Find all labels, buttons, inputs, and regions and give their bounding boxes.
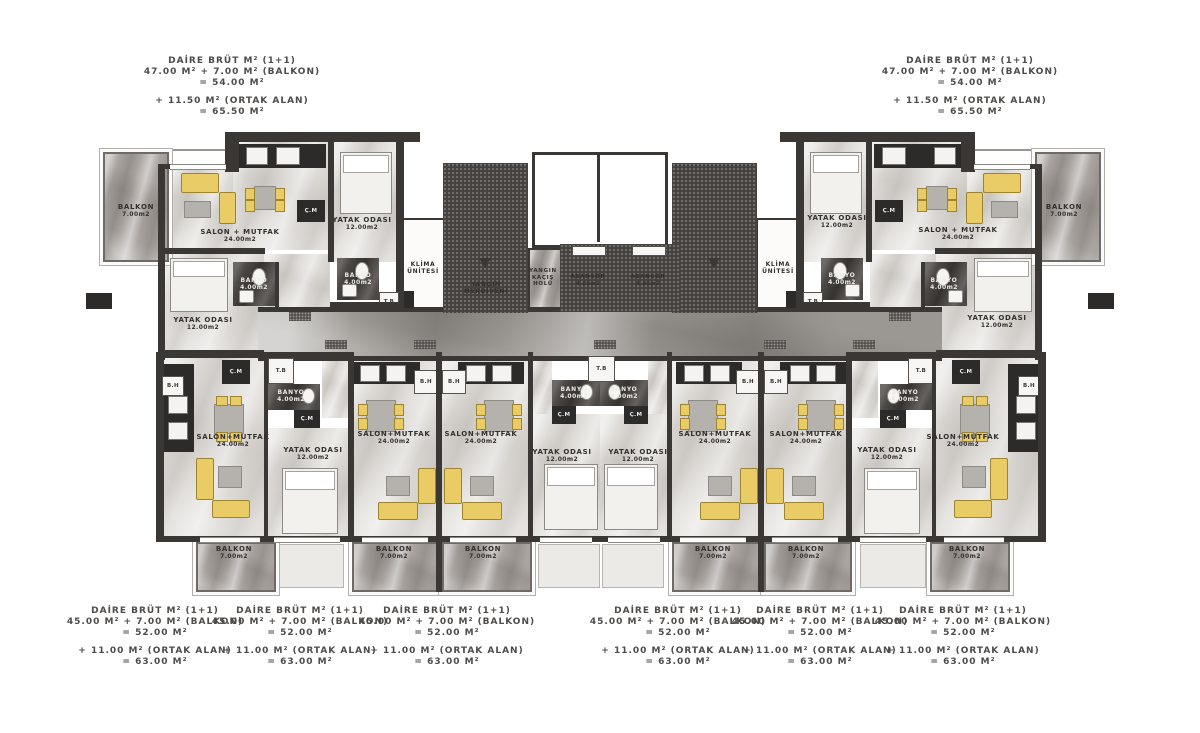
entry-hall	[852, 358, 878, 418]
coffee-table	[184, 201, 211, 218]
room-label-bedroom: YATAK ODASI12.00m2	[857, 446, 916, 462]
ac-unit-box	[1088, 293, 1114, 309]
chair	[245, 188, 255, 200]
chair	[512, 418, 522, 430]
armchair	[740, 468, 758, 504]
room-label-balcony: BALKON7.00m2	[949, 545, 985, 561]
stove	[492, 365, 512, 382]
utility-box: B.H	[442, 370, 466, 394]
chair	[834, 418, 844, 430]
sofa	[983, 173, 1021, 193]
utility-box: T.B	[268, 358, 294, 384]
chair	[834, 404, 844, 416]
stove	[276, 147, 300, 165]
annotation-sum: 47.00 M² + 7.00 M² (BALKON)	[144, 67, 320, 78]
utility-box: B.H	[764, 370, 788, 394]
window	[944, 537, 1004, 543]
bed	[282, 468, 338, 534]
chair	[476, 418, 486, 430]
annotation-grand-total: = 65.50 M²	[144, 107, 320, 118]
kitchen-sink	[790, 365, 810, 382]
room-label-bathroom: BANYO4.00m2	[344, 272, 372, 286]
chair	[275, 200, 285, 212]
coffee-table	[962, 466, 986, 488]
sofa	[954, 500, 992, 518]
room-label-fire-escape-hall: YANGINKAÇIŞHOLÜ	[529, 268, 557, 288]
wall	[330, 302, 400, 312]
kitchen-sink	[1016, 396, 1036, 414]
annotation-title: DAİRE BRÜT M² (1+1)	[882, 56, 1058, 67]
dining-table	[214, 404, 244, 434]
room-label-balcony: BALKON7.00m2	[1046, 203, 1082, 219]
annotation-sum: 45.00 M² + 7.00 M² (BALKON)	[875, 617, 1051, 628]
wall	[921, 262, 925, 312]
chair	[394, 418, 404, 430]
room-label-balcony: BALKON7.00m2	[216, 545, 252, 561]
wall	[848, 352, 1044, 358]
ac-unit-box	[86, 293, 112, 309]
unit-area-annotation-bottom-3: DAİRE BRÜT M² (1+1) 45.00 M² + 7.00 M² (…	[359, 606, 535, 668]
stove	[684, 365, 704, 382]
wall	[396, 142, 404, 312]
wall	[932, 358, 936, 542]
kitchen-sink	[386, 365, 406, 382]
room-label-bedroom: YATAK ODASI12.00m2	[807, 214, 866, 230]
chair	[716, 418, 726, 430]
bed	[810, 152, 862, 214]
room-label-bathroom: BANYO4.00m2	[891, 389, 919, 403]
annotation-title: DAİRE BRÜT M² (1+1)	[144, 56, 320, 67]
entry-hall	[648, 358, 667, 414]
chair	[798, 418, 808, 430]
closet-box: Ç.M	[875, 200, 903, 222]
chair	[947, 200, 957, 212]
utility-box: B.H	[1018, 376, 1040, 396]
entry-mat	[289, 312, 311, 321]
sofa	[212, 500, 250, 518]
chair	[976, 396, 988, 406]
sofa	[700, 502, 740, 520]
room-label-bathroom: BANYO4.00m2	[610, 386, 638, 400]
bathroom-sink	[239, 290, 254, 303]
annotation-total: = 52.00 M²	[875, 628, 1051, 639]
chair	[394, 404, 404, 416]
window	[860, 537, 926, 543]
kitchen-sink	[934, 147, 956, 165]
bed	[340, 152, 392, 214]
wall	[1035, 164, 1042, 360]
closet-box: Ç.M	[222, 360, 250, 384]
entry-mat	[594, 340, 616, 349]
room-label-living: SALON+MUTFAK24.00m2	[197, 433, 270, 449]
annotation-sum: 45.00 M² + 7.00 M² (BALKON)	[359, 617, 535, 628]
chair	[962, 396, 974, 406]
sofa	[990, 458, 1008, 500]
chair	[216, 396, 228, 406]
utility-box: T.B	[908, 358, 934, 384]
room-label-bedroom: YATAK ODASI12.00m2	[608, 448, 667, 464]
service-panel	[860, 544, 926, 588]
entry-mat	[764, 340, 786, 349]
entry-mat	[325, 340, 347, 349]
annotation-title: DAİRE BRÜT M² (1+1)	[875, 606, 1051, 617]
coffee-table	[708, 476, 732, 496]
sofa	[462, 502, 502, 520]
sofa	[784, 502, 824, 520]
stove	[816, 365, 836, 382]
wall	[275, 262, 279, 312]
room-label-living: SALON+MUTFAK24.00m2	[927, 433, 1000, 449]
window	[608, 537, 660, 543]
bed	[864, 468, 920, 534]
kitchen-sink	[246, 147, 268, 165]
chair	[358, 418, 368, 430]
room-label-balcony: BALKON7.00m2	[118, 203, 154, 219]
stair-arrow-right	[708, 258, 720, 268]
annotation-total: = 54.00 M²	[882, 78, 1058, 89]
stairwell-right	[672, 163, 757, 313]
utility-box: T.B	[588, 356, 615, 382]
wall	[264, 358, 268, 542]
bed	[974, 258, 1032, 312]
stove	[168, 422, 188, 440]
annotation-grand-total: = 65.50 M²	[882, 107, 1058, 118]
bed	[604, 464, 658, 530]
wall	[158, 164, 165, 360]
wall	[165, 248, 265, 254]
corridor	[258, 307, 942, 361]
chair	[245, 200, 255, 212]
wall	[935, 248, 1035, 254]
room-label-balcony: BALKON7.00m2	[788, 545, 824, 561]
annotation-total: = 54.00 M²	[144, 78, 320, 89]
service-panel	[278, 544, 344, 588]
room-label-living: SALON+MUTFAK24.00m2	[445, 430, 518, 446]
room-label-klima-right: KLİMAÜNİTESİ	[762, 261, 794, 275]
window	[362, 537, 428, 543]
bathroom-sink	[948, 290, 963, 303]
entry-hall	[533, 358, 552, 414]
bed	[544, 464, 598, 530]
entry-mat	[414, 340, 436, 349]
annotation-grand-total: = 63.00 M²	[875, 657, 1051, 668]
stove	[882, 147, 906, 165]
armchair	[766, 468, 784, 504]
dining-table	[960, 404, 990, 434]
wall	[846, 352, 852, 542]
room-label-bathroom: BANYO4.00m2	[240, 277, 268, 291]
utility-box: B.H	[162, 376, 184, 396]
armchair	[418, 468, 436, 504]
room-label-balcony: BALKON7.00m2	[376, 545, 412, 561]
wall	[800, 302, 870, 312]
sofa	[378, 502, 418, 520]
wall	[780, 132, 972, 142]
room-label-living: SALON + MUTFAK24.00m2	[200, 228, 279, 244]
window	[680, 537, 746, 543]
room-label-living: SALON+MUTFAK24.00m2	[679, 430, 752, 446]
room-label-bedroom: YATAK ODASI12.00m2	[532, 448, 591, 464]
stove	[360, 365, 380, 382]
room-label-bathroom: BANYO4.00m2	[828, 272, 856, 286]
room-label-elevator-right: ASANSÖR4.00m2	[631, 274, 666, 288]
room-label-elevator-left: ASANSÖR4.00m2	[571, 274, 606, 288]
room-label-living: SALON + MUTFAK24.00m2	[918, 226, 997, 242]
floor-plan-canvas: DAİRE BRÜT M² (1+1) 47.00 M² + 7.00 M² (…	[0, 0, 1200, 733]
chair	[476, 404, 486, 416]
bed	[170, 258, 228, 312]
room-label-klima-left: KLİMAÜNİTESİ	[407, 261, 439, 275]
chair	[275, 188, 285, 200]
chair	[947, 188, 957, 200]
service-panel	[538, 544, 600, 588]
closet-box: Ç.M	[952, 360, 980, 384]
sofa	[196, 458, 214, 500]
armchair	[219, 192, 236, 224]
service-panel	[602, 544, 664, 588]
dining-table	[366, 400, 396, 432]
window	[772, 537, 838, 543]
chair	[230, 396, 242, 406]
room-label-bathroom: BANYO4.00m2	[277, 389, 305, 403]
chair	[917, 200, 927, 212]
annotation-common-area: + 11.00 M² (ORTAK ALAN)	[359, 646, 535, 657]
window	[450, 537, 516, 543]
closet-box: Ç.M	[880, 410, 906, 428]
annotation-total: = 52.00 M²	[359, 628, 535, 639]
coffee-table	[470, 476, 494, 496]
room-label-living: SALON+MUTFAK24.00m2	[358, 430, 431, 446]
room-label-bedroom: YATAK ODASI12.00m2	[283, 446, 342, 462]
dining-table	[926, 186, 948, 210]
stove	[1016, 422, 1036, 440]
unit-area-annotation-top-right: DAİRE BRÜT M² (1+1) 47.00 M² + 7.00 M² (…	[882, 56, 1058, 118]
chair	[798, 404, 808, 416]
annotation-grand-total: = 63.00 M²	[359, 657, 535, 668]
room-label-bedroom: YATAK ODASI12.00m2	[967, 314, 1026, 330]
window	[540, 537, 592, 543]
kitchen-sink	[466, 365, 486, 382]
dining-table	[688, 400, 718, 432]
chair	[680, 418, 690, 430]
unit-area-annotation-bottom-6: DAİRE BRÜT M² (1+1) 45.00 M² + 7.00 M² (…	[875, 606, 1051, 668]
annotation-common-area: + 11.50 M² (ORTAK ALAN)	[882, 96, 1058, 107]
room-label-balcony: BALKON7.00m2	[695, 545, 731, 561]
stair-arrow-left	[479, 258, 491, 268]
wall	[228, 132, 420, 142]
dining-table	[806, 400, 836, 432]
coffee-table	[991, 201, 1018, 218]
room-label-balcony: BALKON7.00m2	[465, 545, 501, 561]
room-label-bathroom: BANYO4.00m2	[560, 386, 588, 400]
elevator-door-left	[572, 246, 606, 256]
railing-line	[967, 149, 1097, 151]
entry-mat	[889, 312, 911, 321]
annotation-common-area: + 11.50 M² (ORTAK ALAN)	[144, 96, 320, 107]
coffee-table	[792, 476, 816, 496]
chair	[917, 188, 927, 200]
annotation-title: DAİRE BRÜT M² (1+1)	[359, 606, 535, 617]
utility-box: B.H	[736, 370, 760, 394]
railing-line	[103, 149, 233, 151]
closet-box: Ç.M	[552, 406, 576, 424]
closet-box: Ç.M	[294, 410, 320, 428]
wall	[866, 142, 872, 262]
armchair	[966, 192, 983, 224]
elevator-shaft-void	[532, 152, 668, 248]
window	[170, 164, 226, 170]
kitchen-sink	[710, 365, 730, 382]
unit-area-annotation-top-left: DAİRE BRÜT M² (1+1) 47.00 M² + 7.00 M² (…	[144, 56, 320, 118]
armchair	[444, 468, 462, 504]
wall	[796, 142, 804, 312]
annotation-sum: 47.00 M² + 7.00 M² (BALKON)	[882, 67, 1058, 78]
window	[200, 537, 260, 543]
closet-box: Ç.M	[624, 406, 648, 424]
chair	[680, 404, 690, 416]
dining-table	[254, 186, 276, 210]
kitchen-sink	[168, 396, 188, 414]
window	[274, 537, 340, 543]
closet-box: Ç.M	[297, 200, 325, 222]
wall	[667, 352, 672, 542]
sofa	[181, 173, 219, 193]
wall	[528, 352, 533, 542]
utility-box: B.H	[414, 370, 438, 394]
room-label-bedroom: YATAK ODASI12.00m2	[332, 216, 391, 232]
elevator-door-right	[632, 246, 666, 256]
chair	[716, 404, 726, 416]
wall	[156, 352, 352, 358]
room-label-bedroom: YATAK ODASI12.00m2	[173, 316, 232, 332]
annotation-common-area: + 11.00 M² (ORTAK ALAN)	[875, 646, 1051, 657]
wall	[1038, 352, 1046, 542]
entry-mat	[853, 340, 875, 349]
coffee-table	[386, 476, 410, 496]
shaft-divider-wall	[597, 155, 600, 242]
wall	[328, 142, 334, 262]
chair	[358, 404, 368, 416]
wall	[348, 352, 354, 542]
chair	[512, 404, 522, 416]
room-label-bathroom: BANYO4.00m2	[930, 277, 958, 291]
entry-hall	[322, 358, 348, 418]
room-label-fire-stairs: YANGINMERDİVENİ	[464, 281, 508, 295]
window	[974, 164, 1030, 170]
coffee-table	[218, 466, 242, 488]
room-label-living: SALON+MUTFAK24.00m2	[770, 430, 843, 446]
dining-table	[484, 400, 514, 432]
